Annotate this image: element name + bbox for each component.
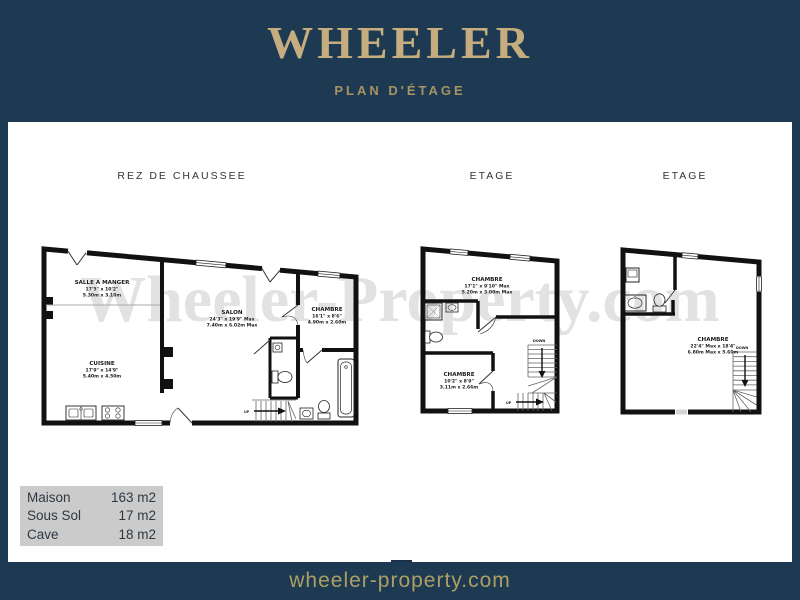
window-icon [448, 408, 472, 415]
outer-walls [44, 249, 356, 423]
row-value: 163 m2 [111, 490, 156, 505]
plan-title-etage-2: ETAGE [635, 170, 735, 182]
svg-text:17'1" x 9'10" Max: 17'1" x 9'10" Max [464, 284, 509, 290]
svg-text:17'5" x 10'2": 17'5" x 10'2" [86, 287, 119, 293]
sink [300, 408, 313, 419]
plan-title-etage-1: ETAGE [442, 170, 542, 182]
svg-text:CHAMBRE: CHAMBRE [311, 307, 342, 313]
svg-text:5.30m x 3.10m: 5.30m x 3.10m [83, 293, 122, 299]
door-opening [170, 420, 192, 427]
stairs-down-label: DOWN [736, 346, 748, 350]
website-link[interactable]: wheeler-property.com [289, 569, 511, 592]
table-row: Sous Sol 17 m2 [27, 508, 156, 523]
svg-text:CUISINE: CUISINE [89, 361, 115, 367]
area-summary-table: Maison 163 m2 Sous Sol 17 m2 Cave 18 m2 [20, 486, 163, 546]
svg-text:4.90m x 2.60m: 4.90m x 2.60m [308, 320, 347, 326]
floorplan-ground-floor: UP SALLE A MANGER 17'5" x 10'2" 5.30m x … [40, 243, 360, 433]
chimney-block [44, 297, 53, 305]
svg-text:7.40m x 6.02m Max: 7.40m x 6.02m Max [207, 323, 258, 329]
outer-walls [623, 250, 759, 412]
row-label: Cave [27, 527, 59, 542]
window-icon [135, 420, 162, 427]
bathtub [338, 359, 354, 417]
stairs-up-label: UP [244, 410, 250, 414]
brand-logo: WHEELER [0, 16, 800, 69]
toilet [318, 401, 330, 420]
svg-text:6.80m Max x 5.60m: 6.80m Max x 5.60m [688, 350, 739, 356]
svg-text:5.40m x 4.50m: 5.40m x 4.50m [83, 374, 122, 380]
stove [102, 406, 124, 420]
page-title: PLAN D'ÉTAGE [0, 83, 800, 98]
row-label: Sous Sol [27, 508, 81, 523]
row-label: Maison [27, 490, 71, 505]
header: WHEELER PLAN D'ÉTAGE [0, 0, 800, 122]
svg-text:24'3" x 19'9" Max: 24'3" x 19'9" Max [209, 317, 254, 323]
room-label-chambre: CHAMBRE 16'1" x 8'6" 4.90m x 2.60m [308, 307, 347, 326]
svg-text:22'4" Max x 18'4": 22'4" Max x 18'4" [690, 344, 735, 350]
svg-text:17'9" x 14'9": 17'9" x 14'9" [86, 368, 119, 374]
svg-text:3.11m x 2.66m: 3.11m x 2.66m [440, 385, 479, 391]
fireplace [160, 379, 173, 389]
sink [273, 343, 282, 352]
fireplace [160, 347, 173, 357]
window-icon [682, 252, 699, 260]
toilet [425, 331, 443, 343]
plan-title-rez-de-chaussee: REZ DE CHAUSSEE [82, 170, 282, 182]
kitchen-sink [66, 406, 96, 420]
chimney-block [44, 311, 53, 319]
sink [446, 303, 458, 312]
row-value: 17 m2 [118, 508, 156, 523]
footer: wheeler-property.com [0, 562, 800, 600]
toilet [272, 371, 292, 383]
floorplan-second-floor: DOWN CHAMBRE 22'4" Max x 18'4" 6.80m Max… [620, 246, 765, 416]
floorplan-first-floor: DOWN UP CHAMBRE 17'1" x 9'10" Max 5.20m … [420, 245, 560, 415]
row-value: 18 m2 [118, 527, 156, 542]
room-label-chambre-2: CHAMBRE 10'2" x 8'9" 3.11m x 2.66m [440, 372, 479, 391]
svg-text:10'2" x 8'9": 10'2" x 8'9" [444, 379, 474, 385]
stairs-down-label: DOWN [533, 339, 545, 343]
floor-plan-page: WHEELER PLAN D'ÉTAGE REZ DE CHAUSSEE ETA… [0, 0, 800, 600]
svg-text:SALLE A MANGER: SALLE A MANGER [75, 280, 131, 286]
svg-text:CHAMBRE: CHAMBRE [443, 372, 474, 378]
vanity-sink [625, 295, 646, 311]
svg-text:CHAMBRE: CHAMBRE [697, 337, 728, 343]
stairs-up-label: UP [506, 401, 512, 405]
table-row: Cave 18 m2 [27, 527, 156, 542]
svg-text:CHAMBRE: CHAMBRE [471, 277, 502, 283]
svg-text:5.20m x 3.00m Max: 5.20m x 3.00m Max [462, 290, 513, 296]
svg-text:SALON: SALON [221, 310, 242, 316]
svg-text:16'1" x 8'6": 16'1" x 8'6" [312, 314, 342, 320]
window-icon [756, 276, 763, 292]
table-row: Maison 163 m2 [27, 490, 156, 505]
sink [626, 268, 639, 282]
toilet [653, 294, 666, 312]
shower [425, 303, 442, 320]
